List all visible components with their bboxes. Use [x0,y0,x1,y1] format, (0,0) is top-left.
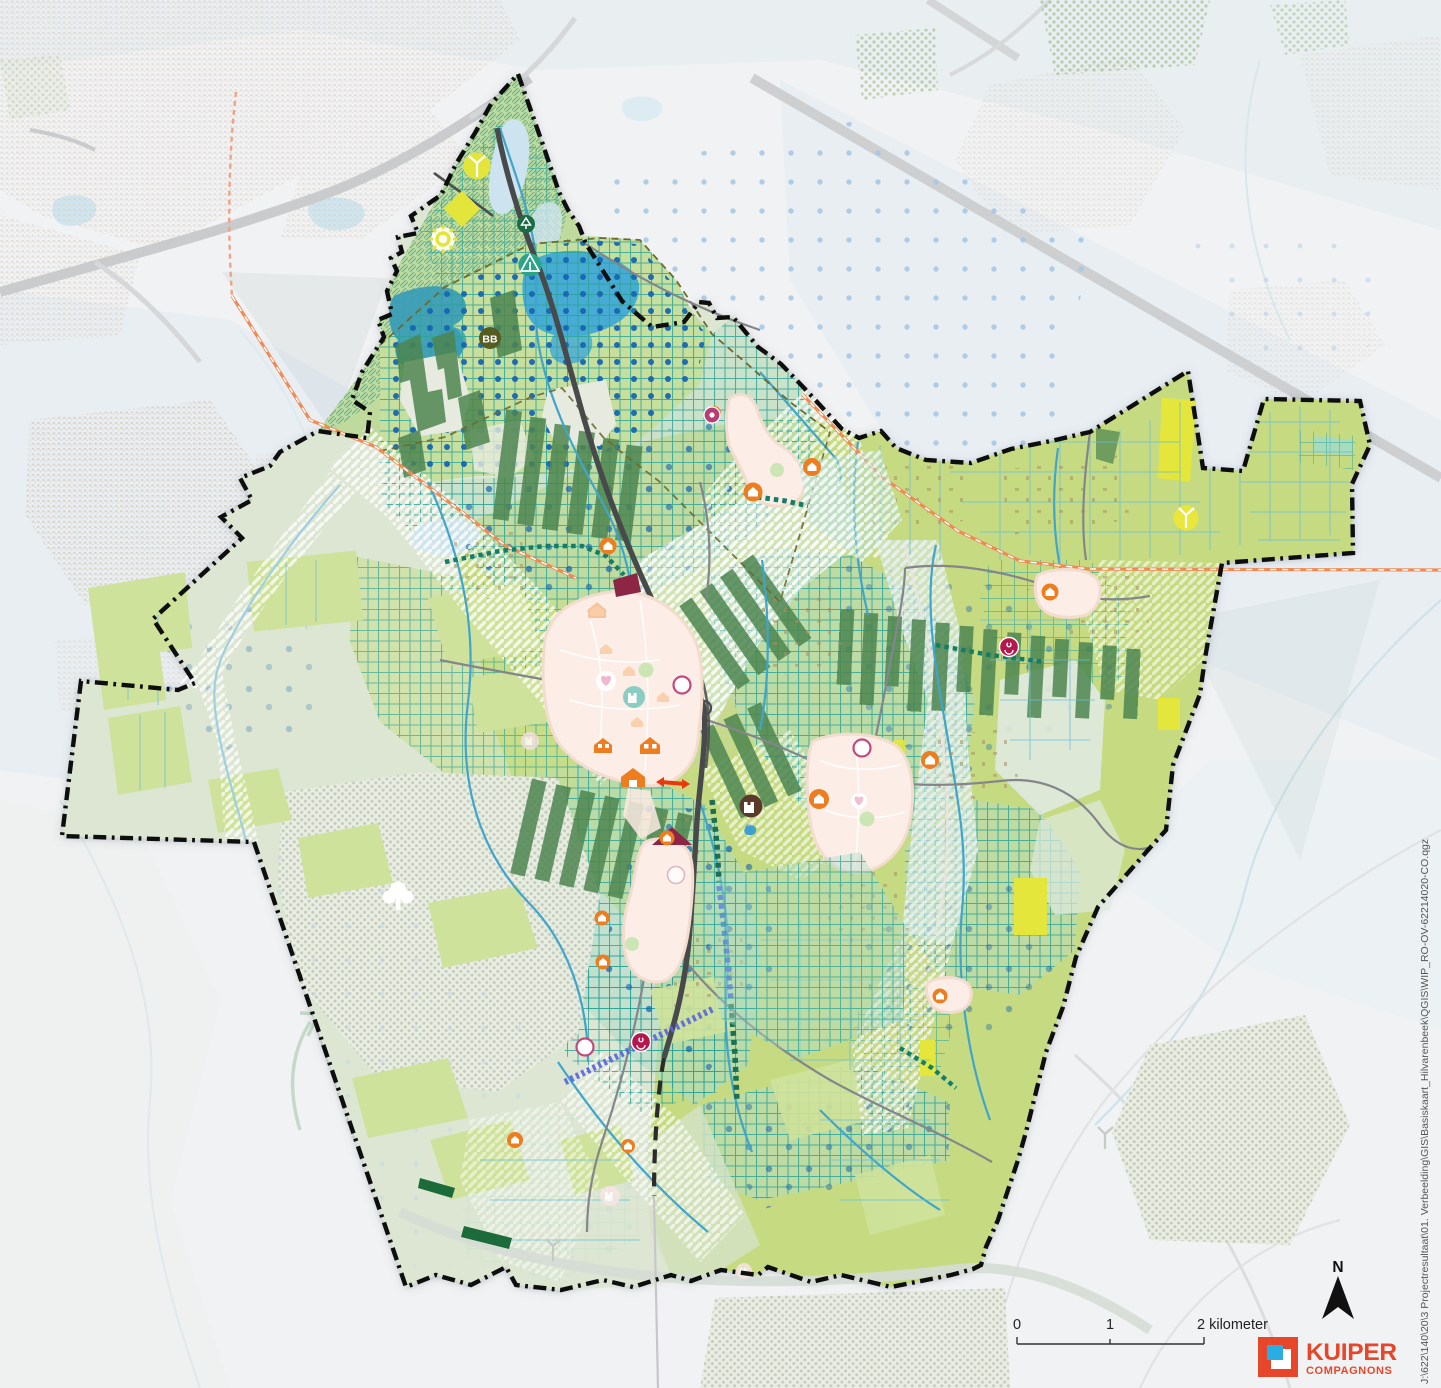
svg-text:J:\622\140\20\3 Projectresulta: J:\622\140\20\3 Projectresultaat\01. Ver… [1419,839,1431,1384]
svg-text:2 kilometer: 2 kilometer [1197,1317,1268,1333]
svg-text:COMPAGNONS: COMPAGNONS [1306,1365,1392,1377]
svg-text:KUIPER: KUIPER [1306,1339,1397,1366]
svg-text:0: 0 [1013,1317,1021,1333]
svg-text:1: 1 [1106,1317,1114,1333]
svg-text:BB: BB [482,334,498,346]
svg-text:N: N [1332,1259,1343,1276]
